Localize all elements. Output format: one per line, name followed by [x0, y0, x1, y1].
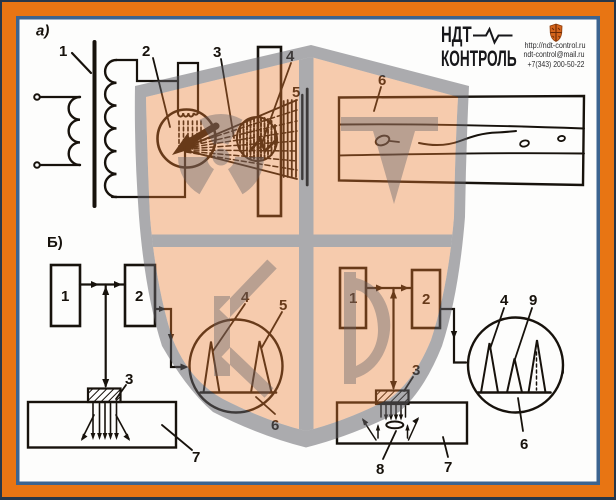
svg-text:6: 6 [520, 436, 528, 453]
svg-text:7: 7 [444, 459, 452, 476]
svg-text:+7(343) 200-50-22: +7(343) 200-50-22 [528, 60, 585, 69]
svg-text:1: 1 [61, 288, 69, 305]
svg-text:9: 9 [529, 292, 537, 309]
svg-text:7: 7 [192, 449, 200, 466]
svg-text:3: 3 [213, 44, 221, 61]
svg-text:НДТ: НДТ [441, 22, 472, 47]
svg-text:а): а) [36, 23, 49, 40]
svg-text:2: 2 [135, 288, 143, 305]
svg-text:8: 8 [376, 461, 384, 478]
svg-text:ndt-control@mail.ru: ndt-control@mail.ru [524, 50, 585, 59]
svg-text:http://ndt-control.ru: http://ndt-control.ru [525, 41, 586, 50]
svg-text:4: 4 [500, 292, 509, 309]
svg-text:2: 2 [142, 43, 150, 60]
svg-text:КОНТРОЛЬ: КОНТРОЛЬ [441, 46, 517, 71]
svg-text:Б): Б) [47, 234, 63, 251]
svg-text:1: 1 [59, 43, 67, 60]
